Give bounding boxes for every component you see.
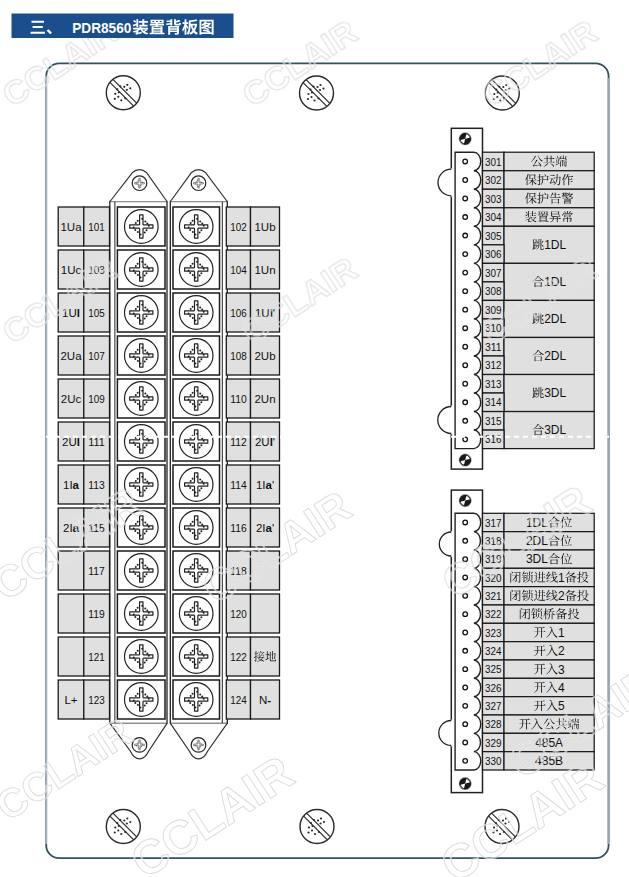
svg-text:1Ub: 1Ub (254, 221, 275, 233)
svg-text:108: 108 (230, 350, 247, 362)
svg-text:312: 312 (485, 359, 502, 371)
svg-text:119: 119 (88, 608, 105, 620)
svg-text:316: 316 (485, 433, 502, 445)
svg-text:315: 315 (485, 415, 502, 427)
svg-text:2Ua: 2Ua (60, 350, 82, 362)
svg-text:322: 322 (485, 608, 502, 620)
svg-text:113: 113 (88, 479, 105, 491)
svg-text:2Ub: 2Ub (254, 350, 275, 362)
svg-text:325: 325 (485, 663, 502, 675)
svg-text:3: 3 (558, 663, 565, 677)
svg-text:117: 117 (88, 565, 105, 577)
svg-text:109: 109 (88, 393, 105, 405)
svg-text:308: 308 (485, 285, 502, 297)
svg-text:303: 303 (485, 193, 502, 205)
svg-text:110: 110 (230, 393, 247, 405)
svg-text:329: 329 (485, 737, 502, 749)
svg-text:1DL: 1DL (544, 238, 566, 252)
svg-text:323: 323 (485, 627, 502, 639)
svg-text:1Ia': 1Ia' (256, 479, 274, 491)
svg-text:321: 321 (485, 590, 502, 602)
svg-text:305: 305 (485, 230, 502, 242)
svg-text:314: 314 (485, 396, 502, 408)
svg-text:327: 327 (485, 700, 502, 712)
svg-text:3DL: 3DL (544, 423, 566, 437)
svg-text:L+: L+ (64, 694, 77, 706)
svg-text:1Un: 1Un (254, 264, 275, 276)
svg-text:4: 4 (558, 681, 565, 695)
svg-text:2: 2 (558, 589, 565, 603)
svg-text:1: 1 (558, 626, 565, 640)
svg-text:304: 304 (485, 211, 502, 223)
svg-text:N-: N- (259, 694, 271, 706)
svg-text:120: 120 (230, 608, 247, 620)
svg-text:313: 313 (485, 378, 502, 390)
svg-text:121: 121 (88, 651, 105, 663)
svg-text:307: 307 (485, 267, 502, 279)
svg-text:116: 116 (230, 522, 247, 534)
svg-text:PDR8560: PDR8560 (72, 19, 131, 36)
svg-text:101: 101 (88, 221, 105, 233)
svg-text:1: 1 (558, 571, 565, 585)
svg-text:2DL: 2DL (544, 349, 566, 363)
svg-text:104: 104 (230, 264, 247, 276)
svg-text:2Uc: 2Uc (61, 393, 82, 405)
svg-text:326: 326 (485, 682, 502, 694)
svg-text:114: 114 (230, 479, 247, 491)
svg-text:328: 328 (485, 718, 502, 730)
svg-text:102: 102 (230, 221, 247, 233)
svg-text:301: 301 (485, 156, 502, 168)
svg-text:105: 105 (88, 307, 105, 319)
svg-text:330: 330 (485, 755, 502, 767)
svg-text:324: 324 (485, 645, 502, 657)
svg-text:123: 123 (88, 694, 105, 706)
svg-text:107: 107 (88, 350, 105, 362)
svg-text:1Ua: 1Ua (60, 221, 82, 233)
svg-text:302: 302 (485, 174, 502, 186)
svg-text:306: 306 (485, 248, 502, 260)
svg-text:1Ia: 1Ia (63, 479, 80, 491)
svg-text:3DL: 3DL (544, 386, 566, 400)
svg-text:122: 122 (230, 651, 247, 663)
svg-text:2Un: 2Un (254, 393, 275, 405)
svg-text:2: 2 (558, 644, 565, 658)
svg-text:124: 124 (230, 694, 247, 706)
